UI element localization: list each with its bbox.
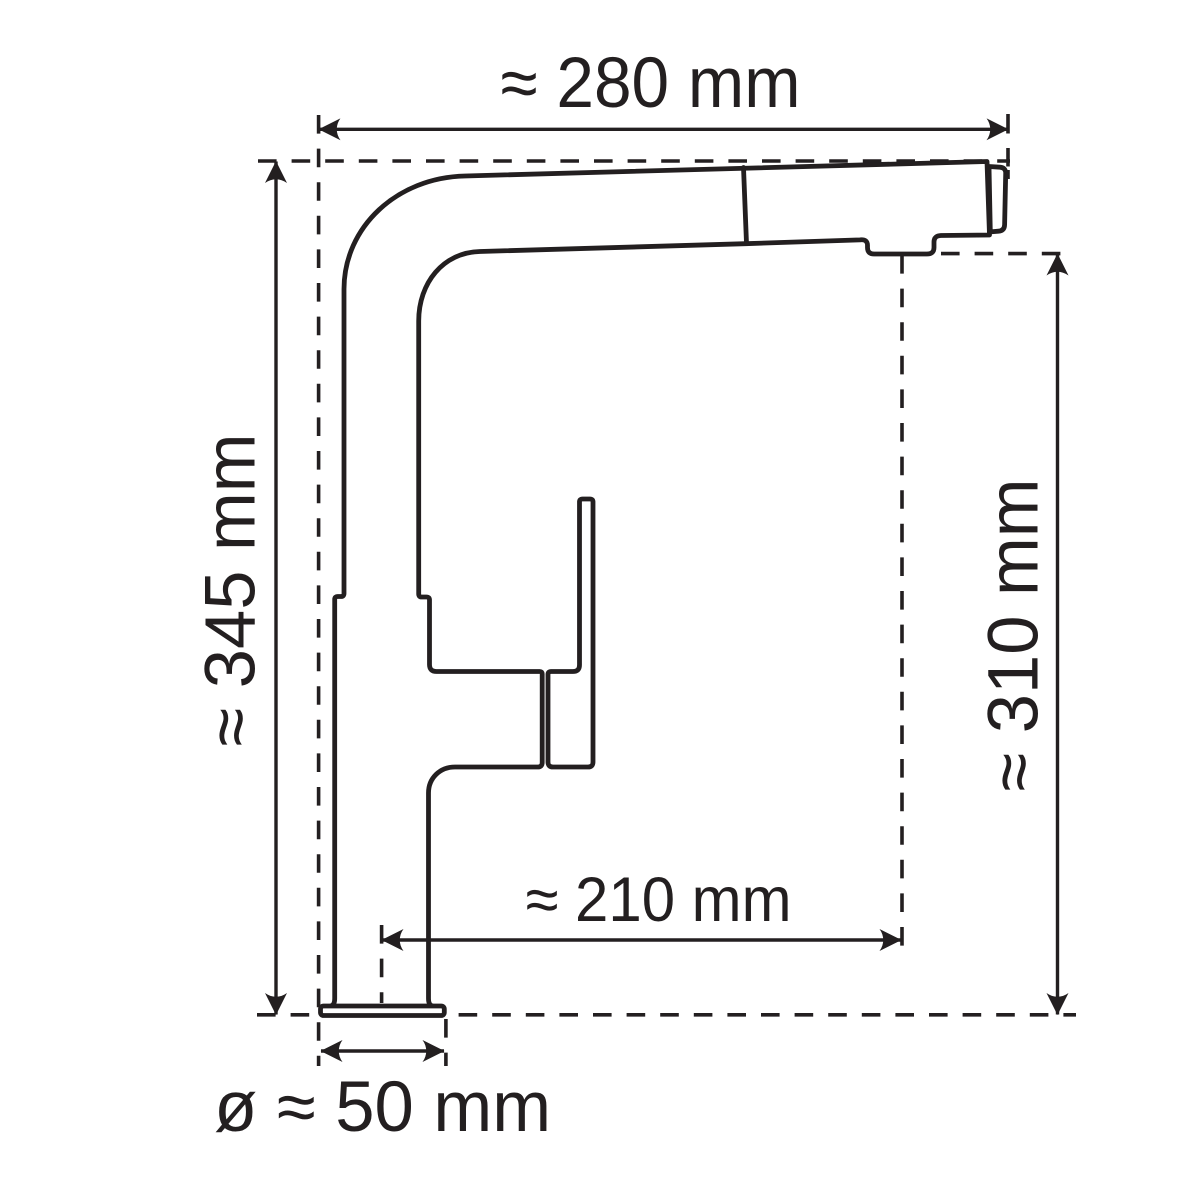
svg-text:≈ 210 mm: ≈ 210 mm xyxy=(526,865,792,935)
svg-text:≈ 280 mm: ≈ 280 mm xyxy=(501,44,801,123)
svg-text:≈ 310 mm: ≈ 310 mm xyxy=(975,479,1054,792)
svg-text:≈ 345 mm: ≈ 345 mm xyxy=(192,434,271,747)
svg-text:ø ≈ 50 mm: ø ≈ 50 mm xyxy=(214,1068,551,1147)
